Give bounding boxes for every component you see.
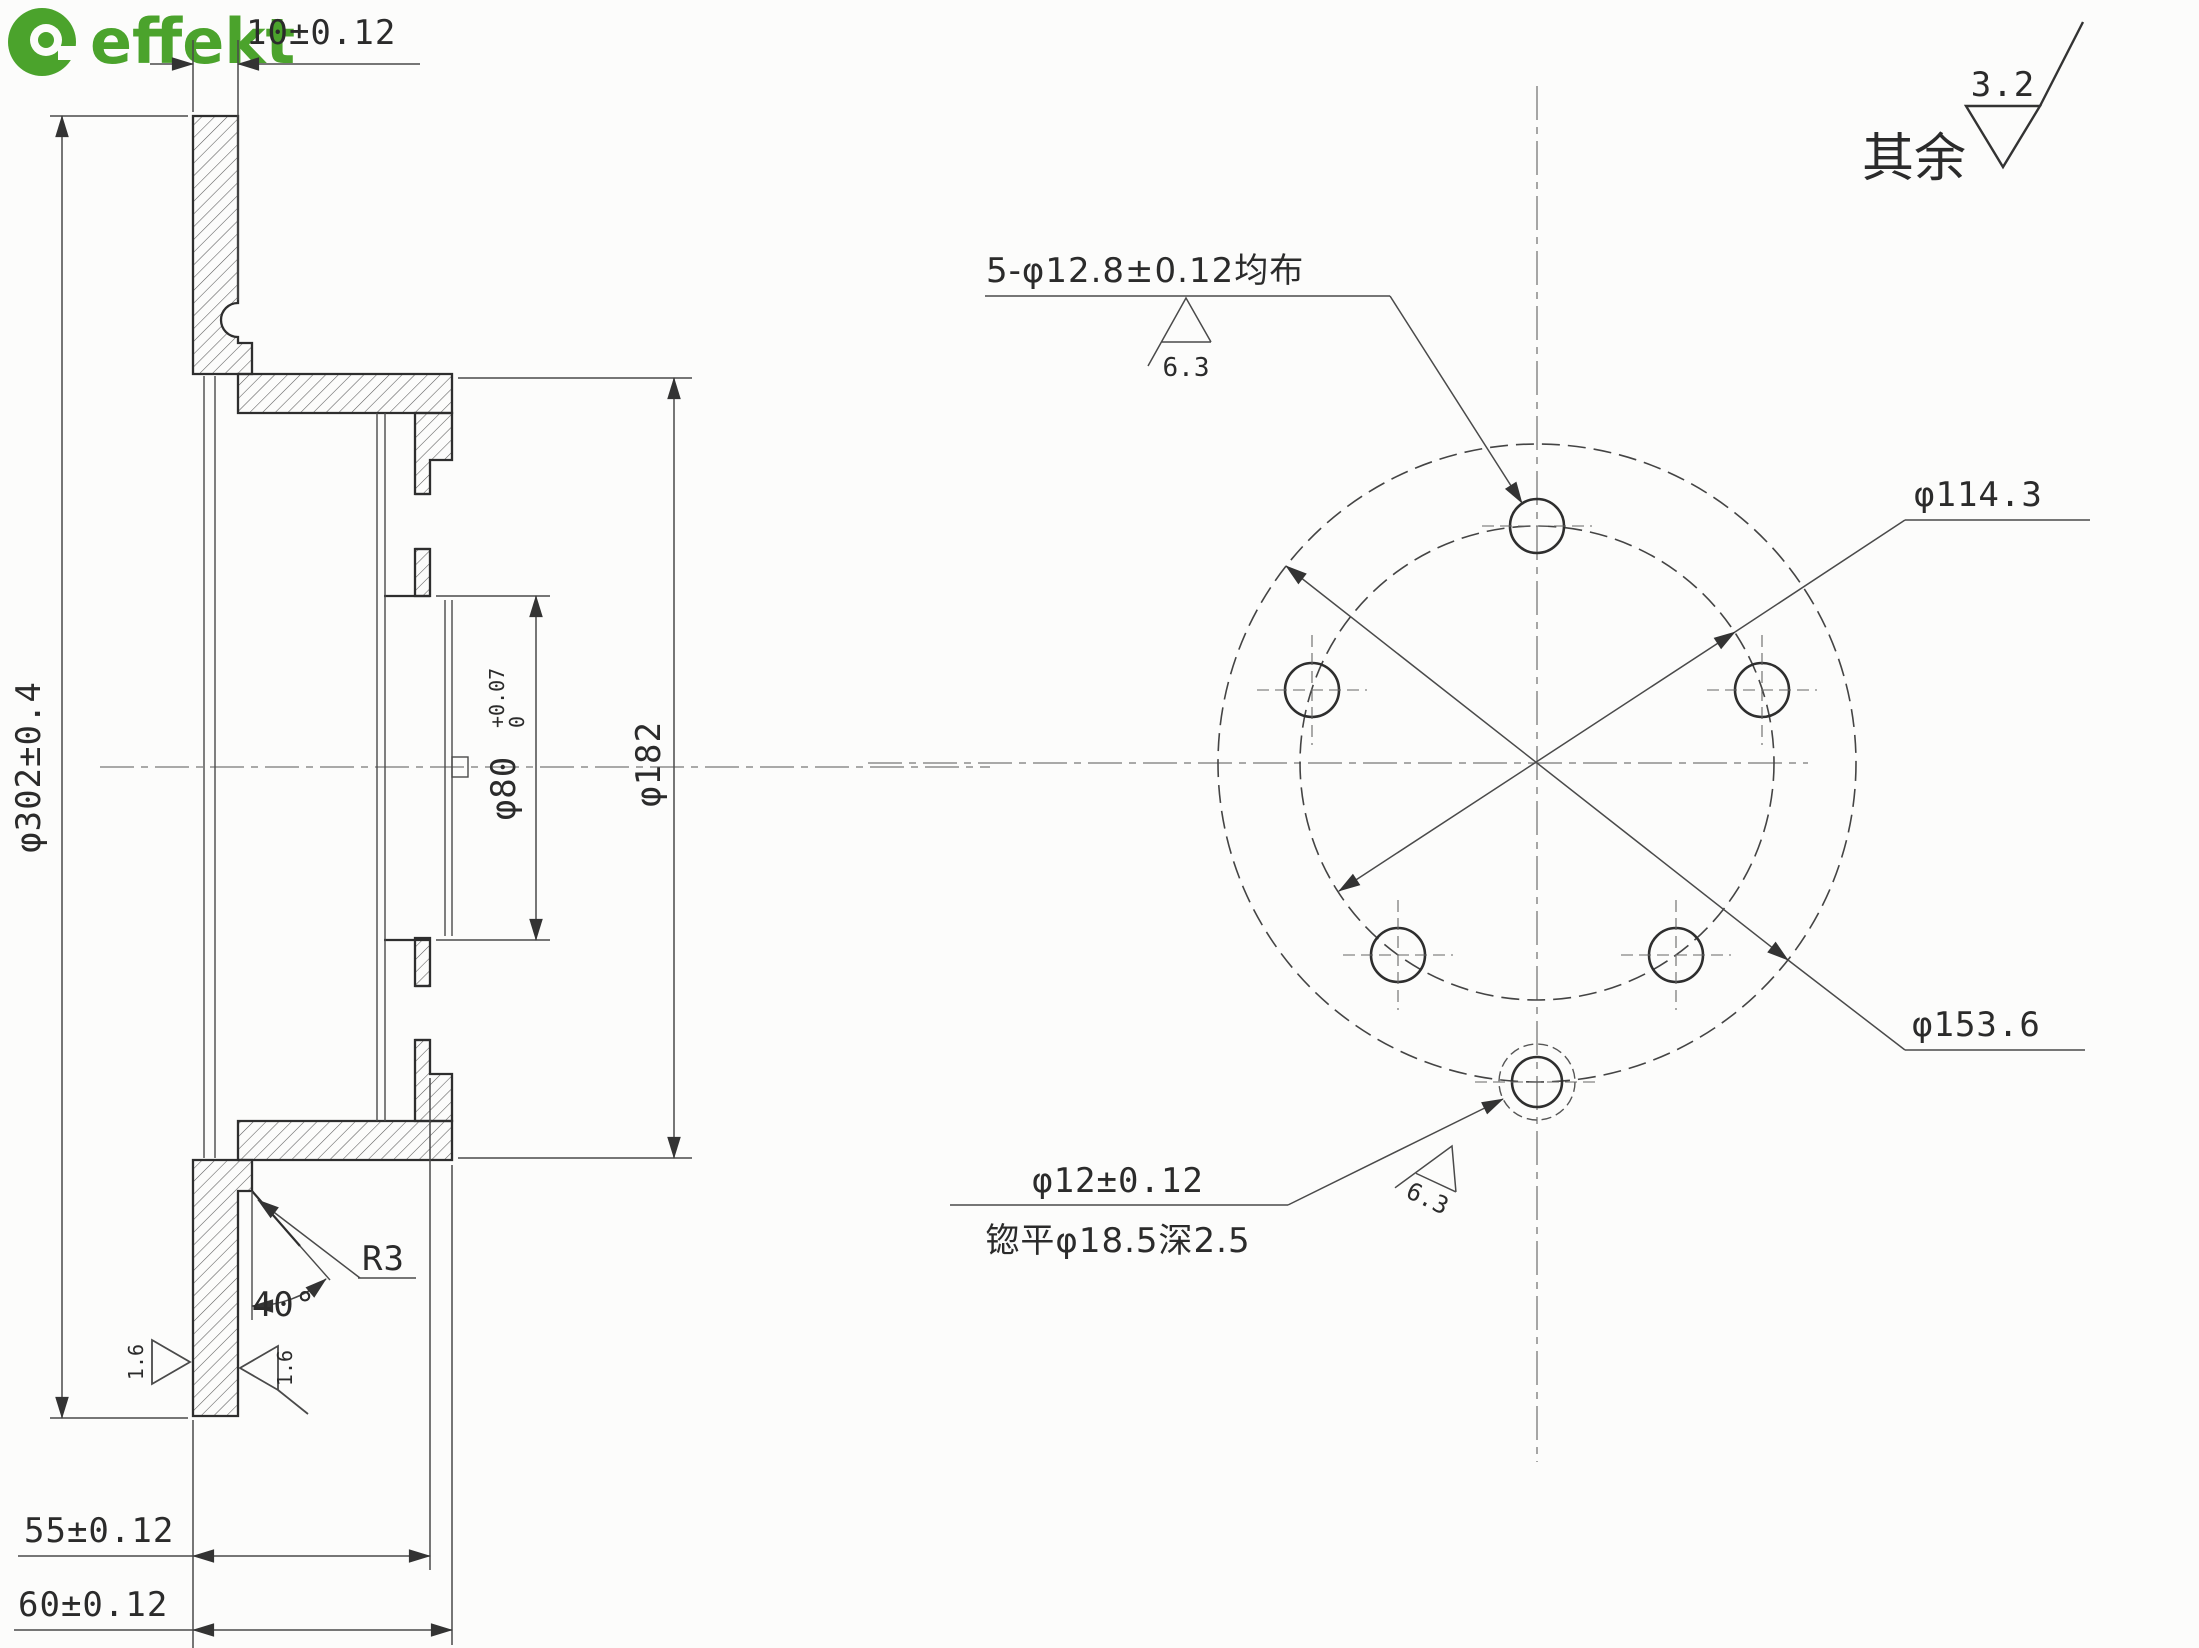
dim-chamfer-angle: 40° — [252, 1279, 326, 1325]
callout-pin-hole-spotface: 锪平φ18.5深2.5 — [985, 1221, 1250, 1261]
flange-top-lower-section — [415, 549, 430, 596]
dim-overall-depth-label: 60±0.12 — [18, 1585, 168, 1625]
dim-bore-label: φ80 — [484, 756, 524, 820]
face-roughness-left: 1.6 — [124, 1340, 190, 1384]
flange-bottom-lower-section — [415, 1040, 452, 1121]
callout-bolt-holes: 5-φ12.8±0.12均布 6.3 — [985, 251, 1522, 503]
general-note-prefix: 其余 — [1862, 129, 1966, 189]
dim-fillet-label: R3 — [362, 1239, 405, 1279]
dim-thickness-label: 10±0.12 — [246, 13, 396, 53]
dim-locating-circle-label: φ153.6 — [1912, 1005, 2041, 1045]
hat-wall-bottom-section — [238, 1121, 452, 1160]
technical-drawing: effekt 其余 3.2 — [0, 0, 2199, 1648]
dim-bore-tol-lower: 0 — [505, 716, 529, 728]
dim-locating-circle: φ153.6 — [1286, 566, 2085, 1050]
section-view: 10±0.12 φ302±0.4 φ182 φ80 +0.07 0 — [9, 13, 990, 1648]
flange-top-upper-section — [415, 413, 452, 494]
general-note-value: 3.2 — [1971, 65, 2035, 105]
dim-bore: φ80 +0.07 0 — [436, 596, 550, 940]
callout-bolt-holes-label: 5-φ12.8±0.12均布 — [986, 251, 1304, 291]
callout-pin-hole-diameter: φ12±0.12 — [1032, 1161, 1204, 1201]
general-roughness-note: 其余 3.2 — [1862, 22, 2083, 189]
roughness-icon — [152, 1340, 190, 1384]
dim-inner-depth-label: 55±0.12 — [24, 1511, 174, 1551]
disc-ring-top-section — [193, 116, 252, 374]
callout-bolt-holes-roughness: 6.3 — [1163, 353, 1210, 383]
section-material — [193, 116, 452, 1416]
face-roughness-left-value: 1.6 — [124, 1344, 148, 1380]
dim-outer-diameter-label: φ302±0.4 — [9, 681, 49, 853]
callout-pin-hole: φ12±0.12 锪平φ18.5深2.5 6.3 — [950, 1099, 1503, 1261]
face-roughness-right-value: 1.6 — [273, 1350, 297, 1386]
drawing-sheet: effekt 其余 3.2 — [0, 0, 2199, 1648]
roughness-icon — [1966, 106, 2040, 167]
front-view: 5-φ12.8±0.12均布 6.3 φ114.3 φ153.6 φ12±0.1… — [868, 86, 2090, 1462]
flange-bottom-upper-section — [415, 938, 430, 986]
callout-pin-hole-roughness: 6.3 — [1402, 1177, 1453, 1221]
hat-wall-top-section — [238, 374, 452, 413]
roughness-icon: 6.3 — [1391, 1132, 1473, 1221]
dim-hat-diameter-label: φ182 — [629, 721, 669, 807]
dim-chamfer-angle-label: 40° — [252, 1285, 316, 1325]
dim-bolt-circle: φ114.3 — [1339, 475, 2090, 891]
disc-ring-bottom-section — [193, 1160, 252, 1416]
dim-fillet: R3 — [258, 1200, 416, 1279]
face-roughness-right: 1.6 — [240, 1346, 308, 1414]
dim-bolt-circle-label: φ114.3 — [1914, 475, 2043, 515]
